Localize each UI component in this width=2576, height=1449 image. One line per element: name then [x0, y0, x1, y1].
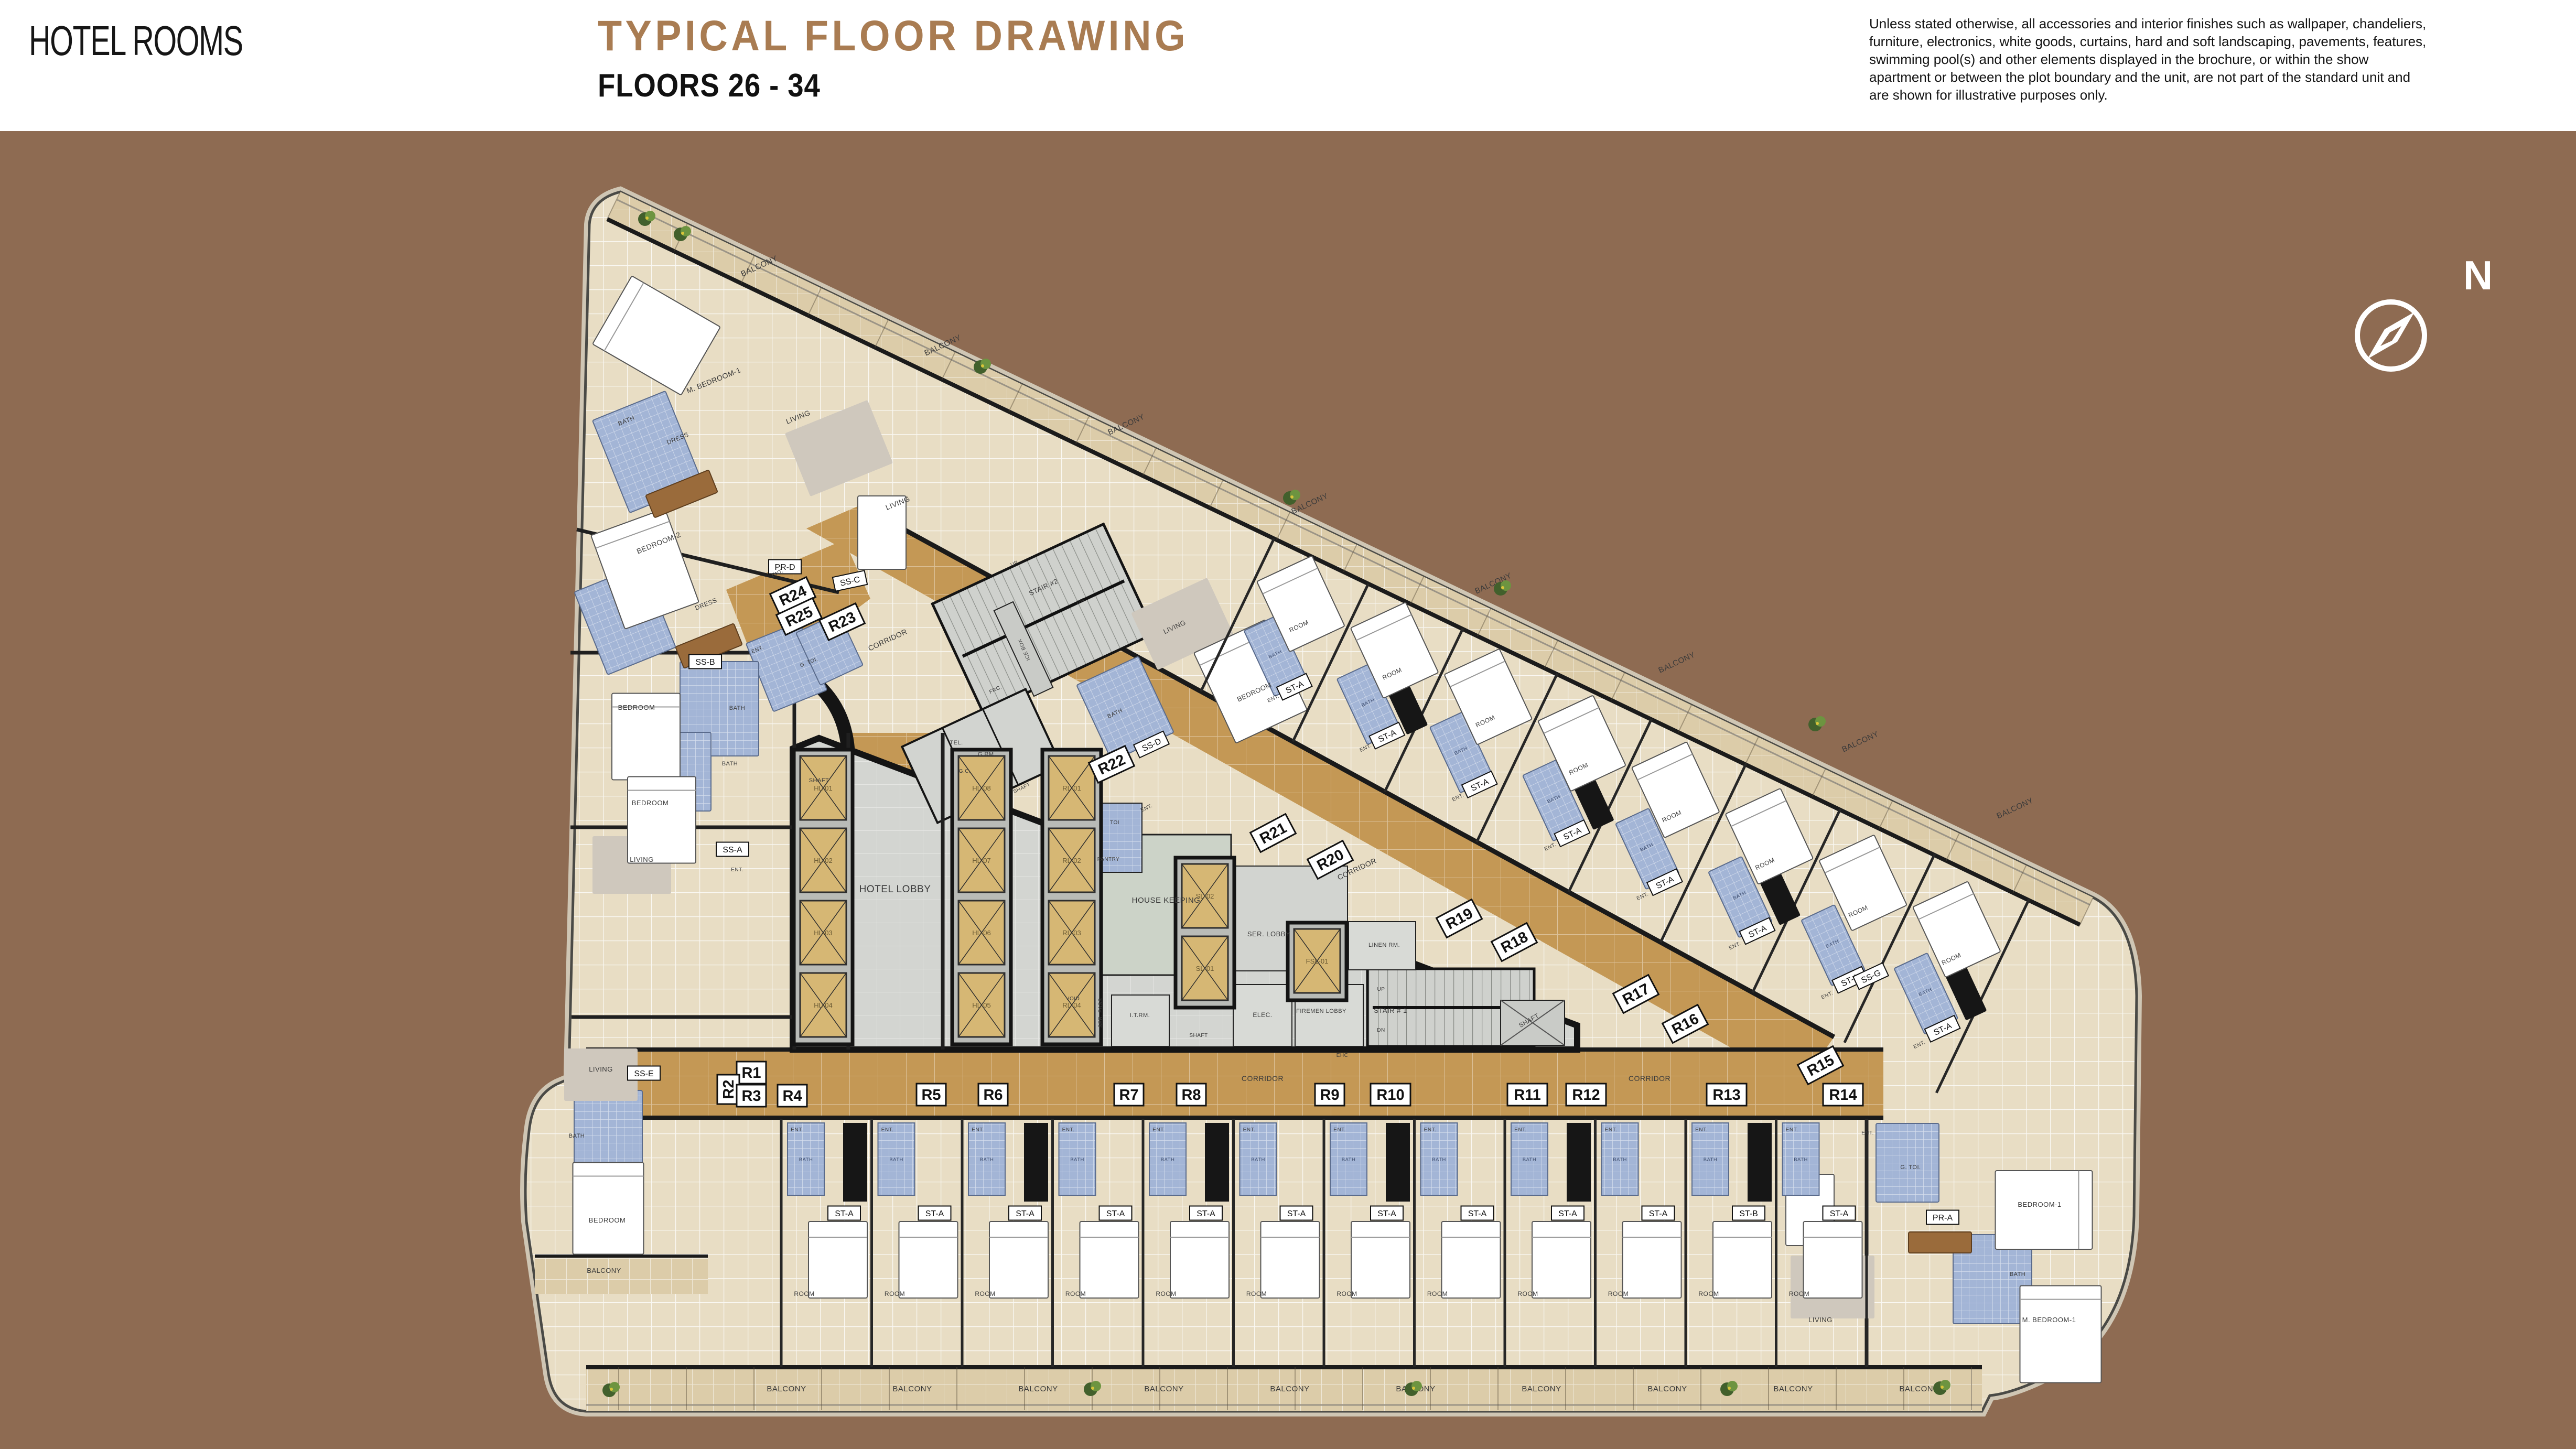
room-label: ENT. [972, 1127, 984, 1133]
room-label: PANTRY [1097, 857, 1120, 862]
svg-text:R6: R6 [983, 1087, 1003, 1104]
room-label: BATH [1342, 1157, 1356, 1163]
room-label: ENT. [1243, 1127, 1256, 1133]
room-label: FIREMEN LOBBY [1296, 1008, 1346, 1014]
room-label: ROOM [975, 1290, 995, 1297]
disclaimer-line: Unless stated otherwise, all accessories… [1869, 15, 2572, 33]
room-label: SHAFT [1189, 1033, 1208, 1039]
svg-text:ST-A: ST-A [1830, 1209, 1849, 1218]
room-label: G.RM. [978, 751, 996, 758]
room-label: ENT. [791, 1127, 803, 1133]
room-label: ENT. [1605, 1127, 1618, 1133]
unit-type-plate: ST-A [1190, 1206, 1222, 1220]
bed [628, 777, 696, 863]
svg-text:SS-B: SS-B [695, 658, 715, 667]
room-label: HOTEL LOBBY [859, 884, 931, 895]
room-label: BATH [1161, 1157, 1175, 1163]
room-label: ELEC. [1253, 1011, 1272, 1019]
unit-type-plate: ST-A [1551, 1206, 1584, 1220]
unit-number-plate: R8 [1177, 1084, 1206, 1106]
room-label: ENT. [1062, 1127, 1075, 1133]
closet [1748, 1123, 1772, 1202]
disclaimer: Unless stated otherwise, all accessories… [1869, 15, 2572, 104]
room-label: SHAFT [809, 777, 829, 784]
room-label: BATH [1070, 1157, 1084, 1163]
closet [843, 1123, 867, 1202]
room-label: G.C. [959, 769, 971, 774]
unit-number-plate: R3 [737, 1085, 766, 1107]
room-label: ENT. [1424, 1127, 1437, 1133]
room-label: ROOM [1789, 1290, 1809, 1297]
elevator-label: SL-01 [1196, 965, 1214, 972]
room-label: ROOM [1517, 1290, 1538, 1297]
svg-text:ST-A: ST-A [925, 1209, 944, 1218]
room-label: BATH [1523, 1157, 1537, 1163]
room-label: DN [1377, 1028, 1385, 1033]
room-label: VOID [1066, 996, 1080, 1002]
room-label: BATH [2010, 1271, 2026, 1278]
room-label: ROOM [1698, 1290, 1719, 1297]
room-label: ROOM [794, 1290, 814, 1297]
svg-text:ST-A: ST-A [1106, 1209, 1125, 1218]
room-label: BALCONY [1270, 1385, 1309, 1393]
room-label: ENT. [1333, 1127, 1346, 1133]
svg-text:PR-A: PR-A [1933, 1214, 1953, 1223]
room-label: BALCONY [1899, 1385, 1938, 1393]
room-label: CORRIDOR [1629, 1074, 1670, 1083]
room-label: ENT. [731, 867, 743, 873]
unit-type-plate: ST-A [1009, 1206, 1041, 1220]
room-label: BATH [1613, 1157, 1627, 1163]
svg-text:R8: R8 [1181, 1087, 1201, 1104]
room-label: TEL. [950, 740, 963, 746]
floor-plan-canvas: ENT.BATHROOMENT.BATHROOMENT.BATHROOMENT.… [0, 0, 2576, 1449]
room-label: BALCONY [1522, 1385, 1561, 1393]
bed [1532, 1221, 1591, 1298]
bed [1713, 1221, 1772, 1298]
room-label: I.T.RM. [1130, 1012, 1150, 1019]
room-label: BATH [1794, 1157, 1808, 1163]
rug [564, 1048, 638, 1101]
room-label: ENT. [1786, 1127, 1798, 1133]
elevator-label: RL-01 [1062, 784, 1081, 792]
svg-text:R4: R4 [782, 1088, 802, 1105]
unit-number-plate: R9 [1315, 1084, 1344, 1106]
unit-type-plate: SS-A [716, 842, 749, 857]
room-label: LIVING [589, 1065, 613, 1073]
disclaimer-line: furniture, electronics, white goods, cur… [1869, 33, 2572, 50]
room-label: SER. LOBBY [1247, 930, 1290, 938]
disclaimer-line: are shown for illustrative purposes only… [1869, 86, 2572, 104]
room-label: BEDROOM [589, 1216, 626, 1224]
unit-number-plate: R10 [1371, 1084, 1410, 1106]
room-label: BATH [889, 1157, 903, 1163]
svg-text:R3: R3 [741, 1088, 761, 1105]
unit-number-plate: R6 [978, 1084, 1008, 1106]
svg-text:R2: R2 [720, 1079, 737, 1099]
unit-type-plate: PR-A [1926, 1210, 1959, 1225]
unit-type-plate: ST-A [1280, 1206, 1313, 1220]
room-label: ROOM [1608, 1290, 1629, 1297]
it-room [1112, 995, 1169, 1046]
elevator-label: HL-02 [814, 857, 832, 864]
bed [899, 1221, 958, 1298]
room-label: G. TOI. [1900, 1164, 1921, 1171]
svg-text:SS-A: SS-A [723, 846, 742, 855]
unit-type-plate: SS-E [628, 1066, 660, 1080]
bed [809, 1221, 867, 1298]
room-label: LINEN RM. [1368, 942, 1400, 948]
bed [989, 1221, 1048, 1298]
wardrobe [1909, 1232, 1971, 1253]
room-label: LIVING [630, 856, 654, 863]
room-label: BATH [1704, 1157, 1718, 1163]
header-band: HOTEL ROOMS TYPICAL FLOOR DRAWING FLOORS… [0, 0, 2576, 131]
svg-text:ST-A: ST-A [1558, 1209, 1577, 1218]
room-label: ENT. [1695, 1127, 1708, 1133]
svg-text:R12: R12 [1572, 1087, 1600, 1104]
bed [1804, 1221, 1862, 1298]
bed [1170, 1221, 1229, 1298]
room-label: BALCONY [1144, 1385, 1183, 1393]
unit-number-plate: R1 [737, 1062, 766, 1084]
closet [1024, 1123, 1048, 1202]
room-label: BATH [569, 1133, 585, 1139]
bed [1623, 1221, 1682, 1298]
room-label: ENT. [881, 1127, 894, 1133]
room-label: BATH [980, 1157, 994, 1163]
bed [2020, 1286, 2101, 1383]
unit-type-plate: ST-A [1371, 1206, 1403, 1220]
room-label: ROOM [1065, 1290, 1086, 1297]
room-label: BATH [1432, 1157, 1446, 1163]
bed [1351, 1221, 1410, 1298]
bed [1261, 1221, 1320, 1298]
room-label: BATH [799, 1157, 813, 1163]
elevator-label: HL-05 [972, 1001, 990, 1009]
svg-text:ST-A: ST-A [1016, 1209, 1034, 1218]
closet [1205, 1123, 1229, 1202]
unit-type-plate: ST-A [828, 1206, 860, 1220]
room-label: BALCONY [1773, 1385, 1813, 1393]
room-label: ROOM [1156, 1290, 1176, 1297]
closet [1386, 1123, 1410, 1202]
room-label: BATH [1251, 1157, 1265, 1163]
room-label: BATH [722, 761, 738, 767]
unit-number-plate: R14 [1823, 1084, 1863, 1106]
svg-text:ST-A: ST-A [1468, 1209, 1487, 1218]
room-label: BALCONY [587, 1267, 621, 1274]
room-label: BALCONY [892, 1385, 932, 1393]
bath-pod [1876, 1123, 1939, 1202]
bed [1996, 1171, 2093, 1249]
svg-text:ST-A: ST-A [1287, 1209, 1306, 1218]
svg-text:ST-A: ST-A [835, 1209, 854, 1218]
unit-number-plate: R12 [1566, 1084, 1606, 1106]
unit-type-plate: ST-A [1823, 1206, 1856, 1220]
bed [1442, 1221, 1501, 1298]
brochure-page: HOTEL ROOMS TYPICAL FLOOR DRAWING FLOORS… [0, 0, 2576, 1449]
closet [1567, 1123, 1591, 1202]
room-label: STAIR # 1 [1374, 1007, 1407, 1014]
room-label: BATH [729, 705, 746, 711]
room-label: BALCONY [1647, 1385, 1687, 1393]
room-label: ENT. [1514, 1127, 1527, 1133]
svg-text:ST-A: ST-A [1377, 1209, 1396, 1218]
svg-text:R13: R13 [1712, 1087, 1740, 1104]
room-label: ROOM [1336, 1290, 1357, 1297]
unit-type-plate: ST-A [919, 1206, 951, 1220]
svg-text:SS-E: SS-E [634, 1069, 653, 1078]
bed [573, 1163, 644, 1255]
room-label: EHC [1336, 1053, 1349, 1058]
room-label: ROOM [1427, 1290, 1448, 1297]
unit-type-plate: ST-B [1732, 1206, 1765, 1220]
svg-text:R9: R9 [1320, 1087, 1339, 1104]
room-label: ENT. [1152, 1127, 1165, 1133]
elevator-label: RL-02 [1062, 857, 1081, 864]
elevator-label: HL-04 [814, 1001, 832, 1009]
svg-text:ST-A: ST-A [1197, 1209, 1215, 1218]
disclaimer-line: apartment or between the plot boundary a… [1869, 68, 2572, 86]
page-title: HOTEL ROOMS [29, 17, 243, 65]
room-label: BEDROOM-1 [2018, 1201, 2061, 1208]
unit-number-plate: R4 [778, 1085, 807, 1107]
svg-text:R1: R1 [741, 1065, 761, 1082]
floors-subtitle: FLOORS 26 - 34 [598, 67, 821, 104]
room-label: BALCONY [1018, 1385, 1058, 1393]
elevator-label: HL-06 [972, 929, 990, 937]
unit-number-plate: R7 [1114, 1084, 1144, 1106]
unit-number-plate: R13 [1707, 1084, 1747, 1106]
room-label: ROOM [1246, 1290, 1267, 1297]
elevator-label: RL-03 [1062, 929, 1081, 937]
svg-text:R10: R10 [1376, 1087, 1404, 1104]
room-label: M. BEDROOM-1 [2022, 1316, 2076, 1324]
svg-text:ST-A: ST-A [1649, 1209, 1668, 1218]
elevator-label: RL-04 [1062, 1001, 1081, 1009]
svg-text:R7: R7 [1119, 1087, 1138, 1104]
svg-text:R5: R5 [921, 1087, 941, 1104]
bed [1080, 1221, 1139, 1298]
unit-type-plate: ST-A [1461, 1206, 1494, 1220]
room-label: LIVING [1808, 1316, 1833, 1324]
svg-text:R14: R14 [1829, 1087, 1857, 1104]
unit-type-plate: ST-A [1642, 1206, 1675, 1220]
elevator-label: HL-01 [814, 784, 832, 792]
unit-type-plate: ST-A [1100, 1206, 1132, 1220]
north-label: N [2463, 252, 2493, 298]
room-label: BEDROOM [618, 704, 655, 711]
room-label: UP [1377, 987, 1385, 992]
disclaimer-line: swimming pool(s) and other elements disp… [1869, 50, 2572, 68]
room-label: BALCONY [767, 1385, 806, 1393]
unit-number-plate: R5 [917, 1084, 946, 1106]
svg-text:R11: R11 [1514, 1087, 1541, 1104]
unit-number-plate: R11 [1507, 1084, 1547, 1106]
drawing-title: TYPICAL FLOOR DRAWING [598, 12, 1189, 61]
elevator-label: HL-07 [972, 857, 990, 864]
elevator-label: HL-08 [972, 784, 990, 792]
room-label: ROOM [885, 1290, 905, 1297]
room-label: TOI [1110, 820, 1119, 826]
svg-text:ST-B: ST-B [1739, 1209, 1758, 1218]
room-label: SER. PASS [1098, 998, 1104, 1028]
elevator-label: HL-03 [814, 929, 832, 937]
elevator-label: FSL-01 [1306, 957, 1329, 965]
room-label: ENT. [1861, 1130, 1874, 1136]
room-label: BEDROOM [632, 799, 669, 807]
room-label: CORRIDOR [1242, 1074, 1284, 1083]
room-label: HOUSE KEEPING [1132, 896, 1201, 905]
unit-type-plate: SS-B [689, 655, 721, 669]
